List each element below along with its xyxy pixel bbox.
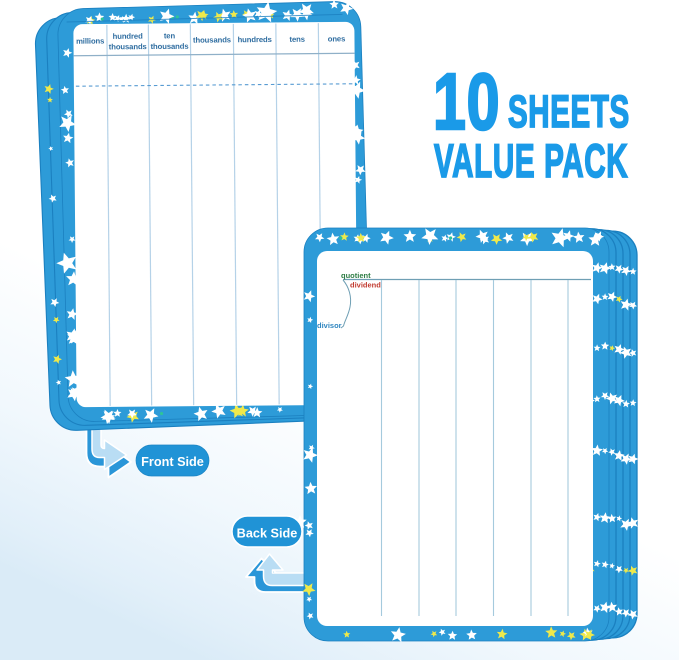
svg-text:Back Side: Back Side bbox=[237, 527, 298, 541]
svg-text:thousands: thousands bbox=[193, 35, 231, 44]
svg-text:Front Side: Front Side bbox=[141, 455, 204, 469]
svg-text:hundreds: hundreds bbox=[238, 35, 272, 44]
svg-text:ten: ten bbox=[164, 31, 176, 40]
svg-text:millions: millions bbox=[76, 36, 104, 45]
svg-text:thousands: thousands bbox=[109, 42, 147, 51]
svg-text:10: 10 bbox=[433, 56, 500, 146]
svg-text:quotient: quotient bbox=[341, 271, 371, 280]
svg-text:ones: ones bbox=[328, 34, 346, 43]
svg-text:VALUE PACK: VALUE PACK bbox=[434, 135, 628, 188]
svg-text:tens: tens bbox=[289, 35, 304, 44]
svg-text:thousands: thousands bbox=[151, 42, 189, 51]
svg-text:divisor: divisor bbox=[317, 321, 342, 330]
svg-text:SHEETS: SHEETS bbox=[508, 88, 630, 138]
svg-text:hundred: hundred bbox=[113, 32, 144, 41]
svg-text:dividend: dividend bbox=[350, 281, 381, 290]
